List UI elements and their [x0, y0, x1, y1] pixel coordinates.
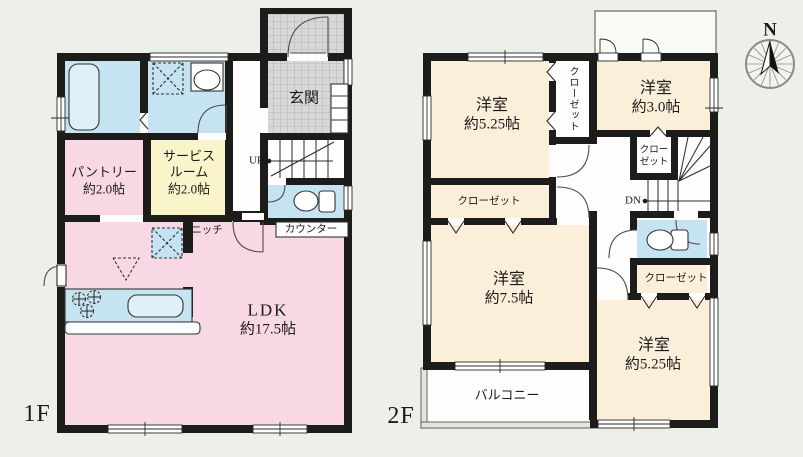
- label-counter: カウンター: [285, 225, 338, 236]
- label-balcony: バルコニー: [475, 389, 540, 402]
- label-service-name2: ルーム: [170, 166, 209, 179]
- label-ldk-name: LDK: [248, 302, 289, 319]
- hall-nook: [549, 142, 597, 178]
- label-closet-hall-1: クロー: [640, 146, 669, 156]
- compass-icon: [746, 40, 794, 88]
- toilet-2f: [647, 230, 688, 250]
- label-ldk-size: 約17.5帖: [240, 323, 296, 338]
- label-bedroom-se-name: 洋室: [638, 338, 670, 354]
- shoe-cabinet: [331, 84, 348, 133]
- room-pantry: [65, 140, 143, 221]
- label-niche: ニッチ: [191, 226, 223, 237]
- label-floor2: 2F: [387, 404, 414, 428]
- bathtub: [69, 64, 99, 130]
- label-bedroom-sw-name: 洋室: [493, 272, 525, 288]
- entrance-porch: [266, 12, 346, 57]
- label-closet-south: クローゼット: [645, 274, 708, 285]
- label-up: UP: [249, 156, 263, 167]
- label-floor1: 1F: [23, 402, 50, 426]
- label-service-size: 約2.0帖: [168, 183, 210, 196]
- roof-outline: [595, 11, 716, 57]
- label-pantry-name: パントリー: [71, 166, 137, 179]
- label-bedroom-ne-size: 約3.0帖: [632, 101, 681, 116]
- label-closet-hall-2: ゼット: [640, 158, 669, 168]
- label-closet-vertical: クローゼット: [567, 66, 577, 132]
- label-bedroom-nw-name: 洋室: [476, 98, 508, 114]
- floorplan-drawing: [0, 0, 803, 457]
- label-closet-west: クローゼット: [458, 197, 521, 208]
- floor1-plan: [44, 8, 352, 436]
- label-bedroom-se-size: 約5.25帖: [625, 358, 681, 373]
- kitchen-sink: [128, 295, 183, 317]
- label-bedroom-ne-name: 洋室: [640, 81, 672, 97]
- label-bedroom-sw-size: 約7.5帖: [485, 292, 534, 307]
- label-bedroom-nw-size: 約5.25帖: [464, 118, 520, 133]
- label-service-name: サービス: [163, 150, 215, 163]
- label-dn: DN: [625, 196, 641, 207]
- label-genkan: 玄関: [289, 92, 319, 107]
- label-compass-north: N: [763, 21, 777, 40]
- refrigerator-space: [152, 228, 182, 258]
- label-pantry-size: 約2.0帖: [83, 183, 125, 196]
- counter-lip: [65, 322, 200, 334]
- floorplan-canvas: 玄関 パントリー 約2.0帖 サービス ルーム 約2.0帖 UP ニッチ カウン…: [0, 0, 803, 457]
